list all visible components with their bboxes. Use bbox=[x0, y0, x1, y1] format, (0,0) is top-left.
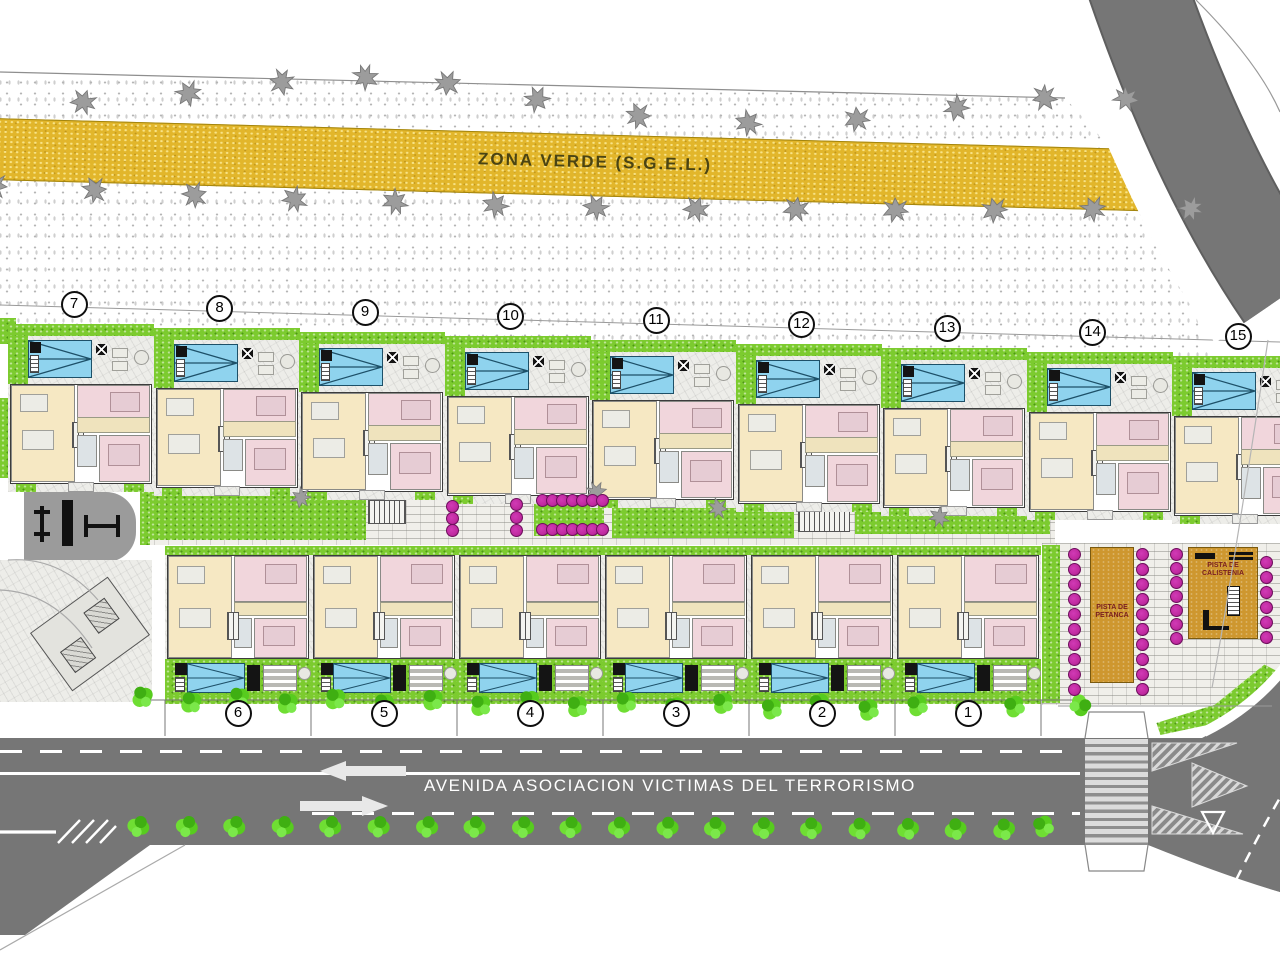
left-turn-arrow bbox=[320, 761, 406, 781]
crosswalk-ramp bbox=[1085, 712, 1148, 738]
plot-number-badge: 7 bbox=[61, 291, 88, 318]
flower-bush bbox=[1068, 578, 1081, 591]
flower-bush bbox=[1068, 683, 1081, 696]
plot-number-badge: 13 bbox=[934, 315, 961, 342]
plot-number-badge: 4 bbox=[517, 700, 544, 727]
flower-bush bbox=[1260, 571, 1273, 584]
flower-bush bbox=[510, 524, 523, 537]
road-end-hatch bbox=[0, 820, 116, 843]
flower-bush bbox=[1170, 604, 1183, 617]
plot-number-badge: 12 bbox=[788, 311, 815, 338]
flower-bush bbox=[1136, 668, 1149, 681]
flower-bush bbox=[1136, 578, 1149, 591]
flower-bush bbox=[1136, 608, 1149, 621]
flower-bush bbox=[1136, 683, 1149, 696]
plot-number-badge: 15 bbox=[1225, 323, 1252, 350]
flower-bush bbox=[1068, 548, 1081, 561]
plot-number-badge: 11 bbox=[643, 307, 670, 334]
road-branch bbox=[0, 845, 150, 935]
flower-bush bbox=[1136, 623, 1149, 636]
flower-bush bbox=[1136, 653, 1149, 666]
flower-bush bbox=[1260, 631, 1273, 644]
plot-number-badge: 10 bbox=[497, 303, 524, 330]
crosswalk-ramp bbox=[1085, 845, 1148, 871]
flower-bush bbox=[1260, 586, 1273, 599]
plot-number-badge: 3 bbox=[663, 700, 690, 727]
ramp-arcs bbox=[0, 560, 98, 648]
flower-bush bbox=[446, 524, 459, 537]
flower-bush bbox=[1260, 556, 1273, 569]
site-plan: ZONA VERDE (S.G.E.L.) PISTA DE PETANCA P… bbox=[0, 0, 1280, 960]
flower-bush bbox=[510, 498, 523, 511]
flower-bush bbox=[1136, 548, 1149, 561]
flower-bush bbox=[1170, 618, 1183, 631]
plot-number-badge: 8 bbox=[206, 295, 233, 322]
plot-number-badge: 6 bbox=[225, 700, 252, 727]
flower-bush bbox=[1170, 590, 1183, 603]
plot-number-badge: 9 bbox=[352, 299, 379, 326]
flower-bush bbox=[1170, 576, 1183, 589]
flower-bush bbox=[1068, 563, 1081, 576]
plot-number-badge: 1 bbox=[955, 700, 982, 727]
flower-bush bbox=[1260, 601, 1273, 614]
flower-bush bbox=[1170, 548, 1183, 561]
plot-number-badge: 14 bbox=[1079, 319, 1106, 346]
flower-bush bbox=[1068, 638, 1081, 651]
flower-bush bbox=[1170, 632, 1183, 645]
plot-number-badge: 2 bbox=[809, 700, 836, 727]
flower-bush bbox=[1068, 653, 1081, 666]
flower-bush bbox=[1068, 593, 1081, 606]
flower-bush bbox=[596, 523, 609, 536]
flower-bush bbox=[1068, 623, 1081, 636]
flower-bush bbox=[1136, 593, 1149, 606]
flower-bush bbox=[1260, 616, 1273, 629]
flower-bush bbox=[596, 494, 609, 507]
flower-bush bbox=[510, 511, 523, 524]
flower-bush bbox=[1136, 638, 1149, 651]
plot-number-badge: 5 bbox=[371, 700, 398, 727]
flower-bush bbox=[1136, 563, 1149, 576]
flower-bush bbox=[1170, 562, 1183, 575]
flower-bush bbox=[1068, 668, 1081, 681]
flower-bush bbox=[1068, 608, 1081, 621]
